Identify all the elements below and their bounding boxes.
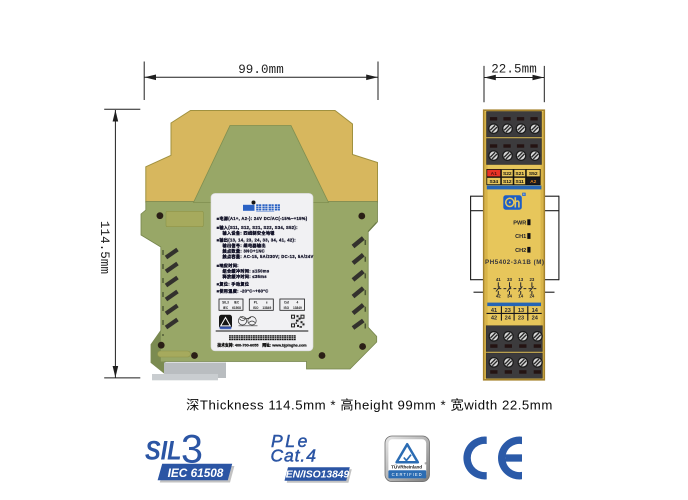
- svg-text:S52: S52: [529, 171, 538, 177]
- svg-text:输出信号: 继电器输出: 输出信号: 继电器输出: [223, 242, 266, 248]
- svg-text:IEC: IEC: [223, 306, 229, 310]
- svg-text:组合缓冲时间: ≤150ms: 组合缓冲时间: ≤150ms: [223, 268, 270, 274]
- svg-text:PL: PL: [254, 301, 258, 305]
- svg-text:IEC 61508: IEC 61508: [168, 466, 224, 480]
- svg-text:23: 23: [529, 277, 534, 282]
- svg-text:e: e: [266, 301, 268, 305]
- svg-text:14: 14: [532, 308, 539, 314]
- svg-text:42: 42: [491, 315, 497, 321]
- svg-text:技术支持: 400-700-6055 网址: www.bjp: 技术支持: 400-700-6055 网址: www.bjpinghe.com: [217, 342, 307, 347]
- svg-text:■输出(13, 14, 23, 24, 33, 34, 41: ■输出(13, 14, 23, 24, 33, 34, 41, 42):: [217, 237, 296, 243]
- svg-text:S11: S11: [515, 179, 524, 185]
- svg-text:61508: 61508: [232, 306, 241, 310]
- svg-text:■复位: 手动复位: ■复位: 手动复位: [217, 280, 250, 286]
- svg-text:TÜVRheinland: TÜVRheinland: [391, 463, 422, 469]
- svg-text:23: 23: [505, 308, 511, 314]
- svg-text:22.5mm: 22.5mm: [491, 63, 537, 77]
- svg-text:CH1: CH1: [515, 234, 526, 240]
- svg-text:■使用温度: -20°C~+60°C: ■使用温度: -20°C~+60°C: [217, 288, 269, 294]
- svg-text:S22: S22: [503, 171, 512, 177]
- svg-text:R: R: [523, 193, 525, 196]
- svg-text:触点容量: AC-15, 5A/230V; DC-13, 5: 触点容量: AC-15, 5A/230V; DC-13, 5A/24V: [223, 253, 314, 259]
- svg-text:■电源(A1+, A2-): 24V DC/AC(-15%~: ■电源(A1+, A2-): 24V DC/AC(-15%~+15%): [217, 215, 308, 221]
- svg-text:CERTIFIED: CERTIFIED: [392, 472, 423, 477]
- svg-text:IEC: IEC: [234, 301, 240, 305]
- svg-text:Cat.4: Cat.4: [271, 446, 317, 466]
- svg-text:SIL: SIL: [145, 436, 182, 466]
- svg-text:13: 13: [518, 277, 523, 282]
- svg-text:S12: S12: [503, 179, 512, 185]
- svg-text:ISO: ISO: [253, 306, 259, 310]
- svg-text:ISO: ISO: [284, 306, 290, 310]
- svg-text:99.0mm: 99.0mm: [238, 63, 284, 77]
- svg-text:13: 13: [518, 308, 524, 314]
- svg-text:13849: 13849: [293, 306, 302, 310]
- svg-text:A1: A1: [491, 171, 498, 177]
- svg-text:释放缓冲时间: ≤35ms: 释放缓冲时间: ≤35ms: [223, 273, 268, 279]
- svg-text:PWR: PWR: [513, 220, 526, 226]
- svg-text:41: 41: [491, 308, 497, 314]
- svg-text:23: 23: [518, 315, 524, 321]
- svg-text:33: 33: [507, 277, 512, 282]
- svg-text:13849: 13849: [262, 306, 271, 310]
- svg-text:41: 41: [496, 277, 501, 282]
- svg-text:PH5402-3A1B (M): PH5402-3A1B (M): [485, 259, 544, 266]
- svg-text:24: 24: [532, 315, 539, 321]
- svg-text:■响应时间:: ■响应时间:: [217, 262, 239, 268]
- svg-text:A2: A2: [530, 179, 537, 185]
- svg-text:4: 4: [297, 301, 299, 305]
- svg-text:EN/ISO13849: EN/ISO13849: [286, 470, 350, 481]
- svg-text:输入设备: 四线制安全地毯: 输入设备: 四线制安全地毯: [223, 229, 276, 235]
- svg-text:SIL3: SIL3: [222, 301, 229, 305]
- svg-text:■输入(S11, S12, S21, S22, S34, S: ■输入(S11, S12, S21, S22, S34, S52):: [217, 224, 298, 230]
- svg-text:S34: S34: [489, 179, 498, 185]
- svg-text:触点数量: 3NO+1NC: 触点数量: 3NO+1NC: [223, 248, 265, 254]
- svg-text:24: 24: [505, 315, 512, 321]
- svg-text:CH2: CH2: [515, 248, 526, 254]
- svg-text:S21: S21: [515, 171, 524, 177]
- svg-text:深Thickness 114.5mm * 高height 9: 深Thickness 114.5mm * 高height 99mm * 宽wid…: [186, 397, 553, 413]
- svg-text:114.5mm: 114.5mm: [97, 221, 111, 274]
